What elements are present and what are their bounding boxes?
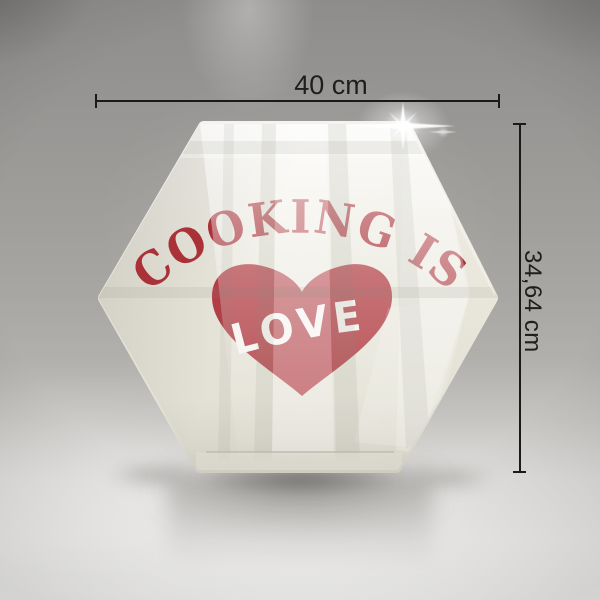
dimension-width-tick-left [95,94,97,108]
dimension-height-tick-top [513,123,526,125]
dimension-width-line [96,100,500,102]
product-photo-scene: COOKING IS LOVE [0,0,600,600]
sparkle-small-icon [429,126,457,138]
dimension-width-tick-right [498,94,500,108]
dimension-height-label: 34,64 cm [518,250,546,370]
dimension-height-tick-bottom [513,471,526,473]
dimension-width-label: 40 cm [271,71,391,99]
window-reflection [98,124,498,470]
